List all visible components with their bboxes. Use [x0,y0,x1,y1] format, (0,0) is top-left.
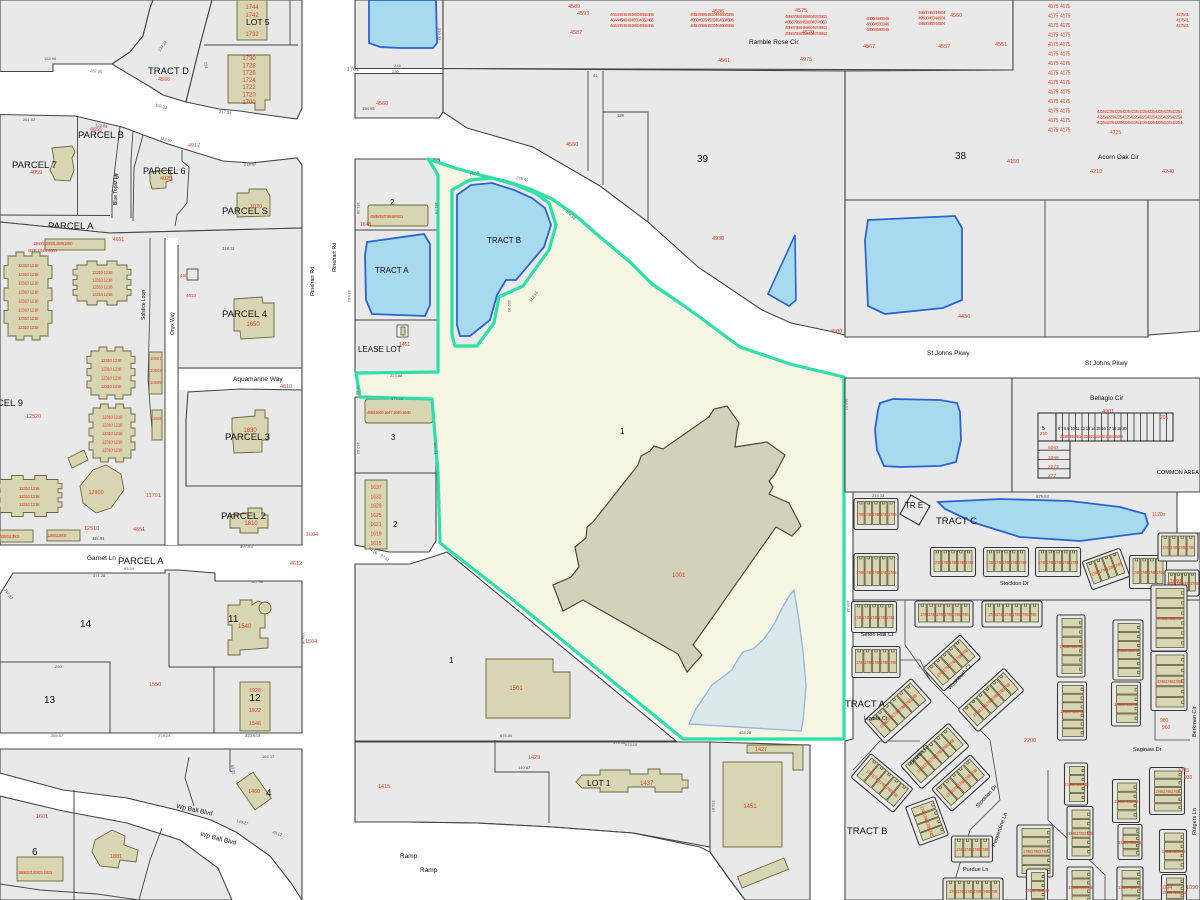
svg-text:318.11: 318.11 [222,246,235,251]
svg-text:12310 1218: 12310 1218 [92,270,113,275]
svg-text:4930: 4930 [712,236,724,242]
svg-text:1540: 1540 [238,624,252,630]
svg-text:1726: 1726 [242,71,256,77]
svg-text:4589: 4589 [568,4,580,10]
svg-text:32x.91: 32x.91 [92,536,105,541]
svg-text:253454452451433233225224521215: 253454452451433233225224521215135485 [1060,434,1124,439]
svg-text:174817481748: 174817481748 [1116,648,1141,653]
svg-text:371.28: 371.28 [93,573,106,578]
svg-text:17481748174817481748: 17481748174817481748 [854,615,895,620]
svg-text:181.75: 181.75 [434,202,439,215]
svg-text:140.87: 140.87 [518,765,531,770]
svg-text:12310 1218: 12310 1218 [18,272,39,277]
svg-text:4: 4 [266,788,272,799]
svg-text:93.34: 93.34 [124,566,135,571]
svg-text:12310 1218: 12310 1218 [19,494,40,499]
svg-text:174817481748: 174817481748 [1068,885,1093,890]
svg-text:174817481748174817481748: 174817481748174817481748 [920,612,969,617]
svg-text:1020: 1020 [250,204,262,210]
svg-text:1550: 1550 [149,682,161,688]
svg-text:4025: 4025 [160,176,172,182]
svg-text:334.87: 334.87 [711,800,716,813]
svg-text:17481748174817481748: 17481748174817481748 [1038,560,1079,565]
svg-text:4175 4175: 4175 4175 [1048,52,1070,58]
svg-text:1501: 1501 [509,686,523,692]
svg-text:12510: 12510 [84,526,99,532]
svg-text:417541: 417541 [1176,23,1189,29]
svg-text:4586: 4586 [712,9,724,15]
svg-text:495045954500464604595: 495045954500464604595 [690,23,734,29]
svg-text:17481748174817481748: 17481748174817481748 [856,660,897,665]
svg-text:10503: 10503 [150,368,162,373]
svg-text:5: 5 [115,174,119,181]
svg-text:Berkman Cir: Berkman Cir [1192,706,1198,737]
svg-text:12: 12 [249,693,261,704]
svg-text:128: 128 [617,113,625,118]
svg-text:1730: 1730 [242,56,256,62]
svg-text:417541: 417541 [1176,12,1189,18]
svg-text:673.16: 673.16 [625,742,638,747]
svg-text:1637: 1637 [370,485,381,491]
svg-text:4917: 4917 [188,143,200,149]
svg-text:17481748174817481748: 17481748174817481748 [856,512,897,517]
svg-text:1451: 1451 [743,804,757,810]
svg-text:1633: 1633 [370,494,381,500]
svg-text:48004580046: 48004580046 [866,27,890,33]
svg-text:1748174817481748: 1748174817481748 [1132,570,1165,575]
svg-text:1650: 1650 [246,322,260,328]
svg-text:10501: 10501 [150,356,162,361]
svg-text:1748174817481748: 1748174817481748 [956,847,989,852]
svg-text:4175 4175: 4175 4175 [1048,118,1070,124]
svg-text:1625: 1625 [370,513,381,519]
svg-text:4560: 4560 [950,13,962,19]
svg-text:1722: 1722 [242,85,256,91]
svg-text:174817481748: 174817481748 [1114,799,1139,804]
svg-text:TRACT B: TRACT B [847,826,887,837]
svg-text:4175 4175: 4175 4175 [1048,33,1070,39]
svg-text:6: 6 [32,847,38,858]
svg-text:Ramble Rose Cir: Ramble Rose Cir [749,39,799,46]
svg-text:4651: 4651 [113,237,124,243]
svg-text:4456: 4456 [958,314,970,320]
svg-text:TRACT B: TRACT B [487,236,521,245]
svg-text:2273: 2273 [1048,464,1059,470]
svg-text:48004580046: 48004580046 [866,22,890,28]
svg-text:1648: 1648 [360,222,371,228]
svg-text:464445464846504652465: 464445464846504652465 [610,23,654,29]
svg-text:Rutgers Ln: Rutgers Ln [1192,808,1198,835]
svg-text:48004580046: 48004580046 [866,16,890,22]
svg-text:960: 960 [1162,725,1171,731]
svg-text:4950046044604: 4950046044604 [918,21,946,27]
svg-text:4175 4175: 4175 4175 [1048,80,1070,86]
svg-text:1090: 1090 [1186,885,1198,891]
svg-text:1830: 1830 [243,428,257,434]
svg-text:187.44: 187.44 [433,442,438,455]
svg-text:174817481748: 174817481748 [1023,849,1048,854]
svg-text:4561: 4561 [718,58,730,64]
svg-text:1205: 1205 [1178,768,1189,774]
svg-text:Seton Hall Ct: Seton Hall Ct [861,632,894,638]
svg-text:PARCEL 6: PARCEL 6 [143,166,186,176]
svg-text:4570: 4570 [802,30,814,36]
svg-text:12310 1218: 12310 1218 [101,384,122,389]
svg-text:4175 4175: 4175 4175 [1048,4,1070,10]
svg-text:4175 4175: 4175 4175 [1048,128,1070,134]
svg-text:11505: 11505 [151,416,163,421]
svg-text:1601: 1601 [36,814,48,820]
svg-text:12310 1218: 12310 1218 [102,414,123,419]
svg-text:LOT 1: LOT 1 [587,778,611,788]
svg-text:14: 14 [80,619,92,630]
svg-text:Acorn Oak Cir: Acorn Oak Cir [1098,154,1140,161]
svg-text:4950046044604: 4950046044604 [918,16,946,22]
svg-text:1460: 1460 [248,789,260,795]
svg-text:4175 4175: 4175 4175 [1048,99,1070,105]
svg-text:TRACT A: TRACT A [845,699,886,710]
svg-text:166618131821 1823: 166618131821 1823 [18,870,53,875]
svg-text:428.28: 428.28 [739,730,752,735]
svg-text:4950046044604: 4950046044604 [918,10,946,16]
svg-text:4655: 4655 [90,127,102,133]
svg-text:4500: 4500 [830,329,842,335]
svg-text:4612: 4612 [290,561,302,567]
svg-text:174817481748: 174817481748 [1060,709,1085,714]
svg-text:TRACT D: TRACT D [148,66,189,77]
svg-text:5067: 5067 [1048,445,1059,451]
svg-text:1415: 1415 [378,784,390,790]
svg-text:38: 38 [955,151,967,162]
svg-text:TR E: TR E [905,501,923,510]
svg-text:1922: 1922 [249,708,261,714]
svg-text:39: 39 [697,154,709,165]
svg-text:464445464846504652465: 464445464846504652465 [610,18,654,24]
svg-text:198.32: 198.32 [846,600,851,613]
svg-text:3269: 3269 [1048,455,1059,461]
svg-text:458945874648#501: 458945874648#501 [370,214,404,219]
svg-text:422542254225422542254225422542: 4225422542254225422542254225422542254225… [1097,109,1183,115]
svg-text:12310 1218: 12310 1218 [102,448,123,453]
svg-text:Garnet Ln: Garnet Ln [87,555,116,562]
svg-text:174817481748: 174817481748 [1118,885,1143,890]
svg-text:174817481748174817481748: 174817481748174817481748 [949,889,998,894]
svg-text:49567958459604974963: 49567958459604974963 [785,14,827,20]
svg-text:1881: 1881 [110,854,122,860]
svg-text:PARCEL 9: PARCEL 9 [0,398,23,409]
svg-text:4225: 4225 [1110,130,1121,136]
svg-text:12310 1218: 12310 1218 [18,307,39,312]
svg-text:223.644: 223.644 [245,733,261,738]
svg-text:194.85: 194.85 [362,106,375,111]
svg-text:12310 1218: 12310 1218 [18,290,39,295]
svg-text:4593: 4593 [577,11,589,17]
svg-text:250: 250 [1040,431,1048,436]
svg-text:234.38: 234.38 [301,632,306,645]
svg-text:1091: 1091 [1170,579,1182,585]
svg-text:4560: 4560 [376,101,388,107]
svg-text:1700: 1700 [242,100,256,106]
svg-text:4567: 4567 [863,44,875,50]
svg-text:1001: 1001 [672,573,686,579]
svg-text:TRACT C: TRACT C [936,516,977,527]
svg-text:4175 4175: 4175 4175 [1048,109,1070,115]
svg-text:17481748174817481748: 17481748174817481748 [986,560,1027,565]
svg-text:17481748174817481748: 17481748174817481748 [856,570,897,575]
svg-text:13: 13 [44,695,56,706]
svg-text:11701: 11701 [146,493,161,499]
svg-text:460: 460 [180,273,188,278]
svg-text:4651: 4651 [133,527,145,533]
svg-text:1461: 1461 [399,342,410,348]
svg-text:12310 1218: 12310 1218 [102,431,123,436]
svg-text:12310 1218: 12310 1218 [101,375,122,380]
svg-text:261.52: 261.52 [23,117,36,122]
svg-text:1: 1 [620,427,625,436]
svg-text:2200: 2200 [1024,738,1036,744]
svg-text:12310 1218: 12310 1218 [19,486,40,491]
svg-text:678.84: 678.84 [500,733,513,738]
svg-text:75.88: 75.88 [355,385,360,396]
svg-text:4550: 4550 [566,142,578,148]
svg-text:1429: 1429 [528,755,540,761]
svg-text:277: 277 [1048,473,1056,479]
svg-text:1629: 1629 [370,504,381,510]
svg-text:3: 3 [391,433,396,442]
svg-text:4175 4175: 4175 4175 [1048,90,1070,96]
svg-text:4160: 4160 [1007,159,1019,165]
svg-text:Ramp: Ramp [420,867,438,874]
svg-text:6 7 8 9 10 11 12 13 14 15 16 1: 6 7 8 9 10 11 12 13 14 15 16 17 18 19 20 [1058,426,1127,431]
svg-text:12310 1218: 12310 1218 [92,277,113,282]
svg-text:179.18: 179.18 [391,396,404,401]
svg-text:12310 1218: 12310 1218 [19,502,40,507]
svg-text:12310 1218: 12310 1218 [18,316,39,321]
svg-text:152.98: 152.98 [44,56,57,61]
svg-text:COMMON AREA: COMMON AREA [1157,470,1199,476]
svg-text:Aquamarine Way: Aquamarine Way [233,376,283,383]
svg-text:Onyx Way: Onyx Way [170,312,176,335]
svg-text:17481748174817481748: 17481748174817481748 [933,560,974,565]
svg-text:4551: 4551 [995,42,1007,48]
svg-text:174817481748: 174817481748 [1118,840,1143,845]
svg-text:12310 1218: 12310 1218 [92,285,113,290]
svg-text:174817481748: 174817481748 [1068,831,1093,836]
svg-text:1250112503: 1250112503 [47,533,67,538]
svg-text:4059: 4059 [30,170,42,176]
svg-text:1724: 1724 [242,78,256,84]
svg-text:1: 1 [449,656,454,665]
svg-text:Bellagio Cir: Bellagio Cir [1090,395,1124,402]
svg-text:12310 1218: 12310 1218 [101,358,122,363]
svg-text:1732: 1732 [245,32,259,38]
svg-text:4610: 4610 [280,384,292,390]
svg-text:248: 248 [394,63,401,68]
svg-text:218.97: 218.97 [244,162,257,167]
svg-text:4175 4175: 4175 4175 [1048,61,1070,67]
svg-text:1619: 1619 [370,532,381,538]
svg-text:12310 1218: 12310 1218 [92,292,113,297]
svg-text:46511649 1647 1645 1648: 46511649 1647 1645 1648 [367,410,411,416]
svg-text:4175 4175: 4175 4175 [1048,14,1070,20]
svg-text:1720: 1720 [242,93,256,99]
svg-text:Rinehart Rd: Rinehart Rd [310,267,316,296]
svg-text:4240: 4240 [1162,169,1174,175]
svg-text:679.84: 679.84 [1036,494,1049,499]
svg-text:1744: 1744 [245,5,259,11]
svg-text:Rinehart Rd: Rinehart Rd [332,243,338,272]
svg-text:St Johns Pkwy: St Johns Pkwy [927,350,970,357]
svg-text:223.81: 223.81 [347,290,352,303]
svg-text:165.37: 165.37 [262,754,275,759]
svg-text:417541: 417541 [1176,18,1189,24]
svg-text:12310 1218: 12310 1218 [18,281,39,286]
svg-text:252.81: 252.81 [507,300,512,313]
svg-text:269.37: 269.37 [51,733,64,738]
svg-text:4610: 4610 [186,293,197,298]
svg-text:4175 4175: 4175 4175 [1048,71,1070,77]
svg-text:192.63: 192.63 [356,442,361,455]
svg-text:Solstice Loop: Solstice Loop [141,290,147,320]
svg-text:12900: 12900 [88,490,103,496]
svg-text:4210: 4210 [1090,169,1102,175]
svg-text:1427: 1427 [755,747,767,753]
svg-text:174817481748: 174817481748 [1059,644,1084,649]
svg-text:LOT 5: LOT 5 [246,17,270,27]
svg-text:4175 4175: 4175 4175 [1048,42,1070,48]
svg-text:1094: 1094 [1160,885,1172,891]
svg-text:1437: 1437 [640,781,654,787]
svg-text:201: 201 [1160,415,1169,421]
svg-text:4975: 4975 [800,57,812,63]
svg-text:1728: 1728 [242,63,256,69]
svg-text:2: 2 [393,520,398,529]
svg-text:187.98: 187.98 [251,579,264,584]
svg-text:TRACT A: TRACT A [375,266,409,275]
svg-text:St Johns Pkwy: St Johns Pkwy [1085,360,1128,367]
svg-text:4557: 4557 [938,44,950,50]
svg-text:1810: 1810 [244,521,258,527]
svg-text:174817481748: 174817481748 [1114,702,1139,707]
svg-text:4566: 4566 [158,77,170,83]
svg-text:12310 1218: 12310 1218 [18,325,39,330]
svg-text:191.38: 191.38 [356,202,361,215]
svg-text:41: 41 [593,73,598,78]
svg-text:1350113503: 1350113503 [0,534,20,539]
svg-text:1621: 1621 [370,522,381,528]
svg-text:174817481748: 174817481748 [1025,888,1050,893]
svg-text:373.16: 373.16 [613,740,626,745]
svg-text:174817481748: 174817481748 [1161,849,1186,854]
svg-text:1748174817481748: 1748174817481748 [1162,545,1195,550]
svg-text:230: 230 [392,69,399,74]
svg-text:930: 930 [1184,775,1193,781]
svg-text:223.88: 223.88 [390,373,403,378]
svg-text:Ramp: Ramp [400,853,418,860]
svg-text:174817481748: 174817481748 [1157,679,1182,684]
svg-text:4175 4175: 4175 4175 [1048,23,1070,29]
svg-text:PARCEL 4: PARCEL 4 [222,309,267,320]
svg-text:12520: 12520 [26,414,41,420]
svg-text:174817481748: 174817481748 [1064,782,1089,787]
svg-text:397.83: 397.83 [240,544,253,549]
svg-text:12310 1218: 12310 1218 [102,423,123,428]
svg-text:12310 1218: 12310 1218 [102,439,123,444]
svg-text:1546: 1546 [249,721,261,727]
svg-text:12310 1218: 12310 1218 [18,263,39,268]
svg-text:49567958459604974963: 49567958459604974963 [785,20,827,26]
svg-text:1604: 1604 [306,532,318,538]
svg-text:Saginaw Dr: Saginaw Dr [1133,747,1162,753]
svg-text:464445464846504652465: 464445464846504652465 [610,12,654,18]
svg-text:1250012503125051250: 1250012503125051250 [33,241,73,246]
svg-text:980: 980 [1160,718,1169,724]
svg-text:174817481748174817481748: 174817481748174817481748 [988,612,1037,617]
svg-text:232.33: 232.33 [437,28,442,41]
svg-text:Loyola Ct: Loyola Ct [864,716,888,722]
svg-text:213.33: 213.33 [872,493,885,498]
svg-text:495045954500464604595: 495045954500464604595 [690,18,734,24]
svg-text:422542254225422542254225422542: 4225422542254225422542254225422542254225… [1097,120,1183,126]
svg-text:12310 1218: 12310 1218 [18,298,39,303]
svg-text:174817481748: 174817481748 [1157,616,1182,621]
svg-text:168.32: 168.32 [844,398,849,411]
svg-text:10505: 10505 [150,380,162,385]
svg-text:174817481748: 174817481748 [1155,789,1180,794]
svg-text:4587: 4587 [570,30,582,36]
svg-text:290: 290 [55,664,62,669]
svg-text:278.24: 278.24 [158,733,171,738]
svg-text:Stockton Dr: Stockton Dr [1000,581,1029,587]
svg-text:LEASE LOT: LEASE LOT [358,345,402,354]
svg-text:12310 1218: 12310 1218 [101,367,122,372]
svg-text:Purdue Ln: Purdue Ln [963,867,988,873]
svg-text:422542254225422542254225422542: 4225422542254225422542254225422542254225… [1097,115,1183,121]
svg-text:4575: 4575 [795,8,807,14]
svg-text:1120x: 1120x [1152,512,1166,518]
